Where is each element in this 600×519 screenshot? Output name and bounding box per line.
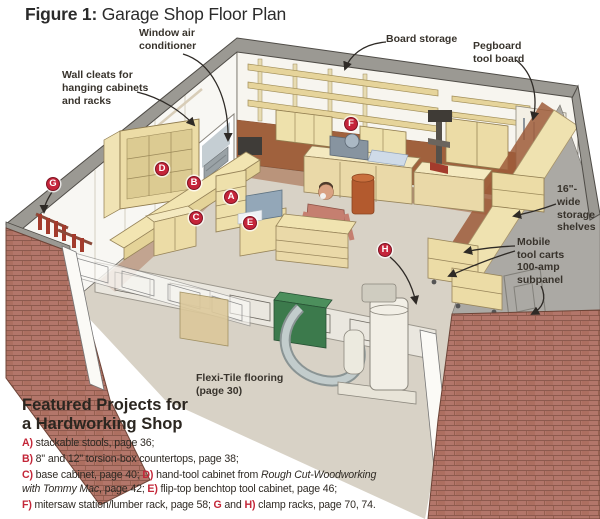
legend-text-e: flip-top benchtop tool cabinet, page 46;: [158, 483, 337, 495]
legend-letter-d: D): [142, 469, 153, 481]
figure-label: Figure 1:: [25, 4, 97, 24]
marker-g: G: [46, 177, 60, 191]
center-workbench: [276, 214, 356, 268]
callout-mobile-carts: Mobile tool carts: [517, 236, 564, 262]
bench-grinder: [238, 137, 262, 155]
right-workbench: [414, 162, 492, 212]
drum-barrel: [352, 174, 374, 214]
legend-item-b: B) 8" and 12" torsion-box countertops, p…: [22, 453, 388, 467]
legend-item-fgh: F) mitersaw station/lumber rack, page 58…: [22, 499, 388, 513]
legend-letter-c: C): [22, 469, 33, 481]
wall-cabinet: [446, 118, 508, 170]
lumber-cart: [180, 292, 228, 346]
legend-text-d: hand-tool cabinet from: [153, 469, 261, 481]
legend-text-c: base cabinet, page 40;: [33, 469, 143, 481]
legend-text-f: mitersaw station/lumber rack, page 58;: [32, 499, 214, 511]
callout-window-ac: Window air conditioner: [139, 27, 196, 53]
legend-item-cde: C) base cabinet, page 40; D) hand-tool c…: [22, 469, 388, 497]
marker-h: H: [378, 243, 392, 257]
marker-f: F: [344, 117, 358, 131]
callout-wall-cleats: Wall cleats for hanging cabinets and rac…: [62, 69, 148, 107]
figure-title-text: Garage Shop Floor Plan: [97, 4, 286, 24]
small-cabinet: [492, 172, 544, 212]
figure-canvas: Figure 1: Garage Shop Floor Plan Window …: [0, 0, 600, 519]
brick-wall-right: [428, 310, 600, 519]
legend-text-d2: , page 42;: [99, 483, 147, 495]
legend-item-a: A) stackable stools, page 36;: [22, 437, 388, 451]
legend-letter-e: E): [147, 483, 157, 495]
legend-letter-g: G: [214, 499, 222, 511]
callout-flooring: Flexi-Tile flooring (page 30): [196, 372, 283, 398]
callout-pegboard: Pegboard tool board: [473, 40, 524, 66]
marker-a: A: [224, 190, 238, 204]
legend-text-h: clamp racks, page 70, 74.: [255, 499, 375, 511]
marker-d: D: [155, 162, 169, 176]
legend-letter-b: B): [22, 453, 33, 465]
legend-letter-f: F): [22, 499, 32, 511]
callout-subpanel: 100-amp subpanel: [517, 261, 563, 287]
callout-board-storage: Board storage: [386, 33, 457, 46]
legend-text-a: stackable stools, page 36;: [33, 437, 154, 449]
legend-heading: Featured Projects for a Hardworking Shop: [22, 396, 388, 433]
legend-letter-h: H): [244, 499, 255, 511]
marker-b: B: [187, 176, 201, 190]
legend-text-b: 8" and 12" torsion-box countertops, page…: [33, 453, 239, 465]
marker-c: C: [189, 211, 203, 225]
dust-mask: [320, 193, 326, 199]
callout-storage-shelves: 16"-wide storage shelves: [557, 183, 600, 234]
marker-e: E: [243, 216, 257, 230]
legend: Featured Projects for a Hardworking Shop…: [22, 396, 388, 515]
legend-text-gh: and: [222, 499, 245, 511]
legend-letter-a: A): [22, 437, 33, 449]
page-title: Figure 1: Garage Shop Floor Plan: [25, 4, 286, 25]
